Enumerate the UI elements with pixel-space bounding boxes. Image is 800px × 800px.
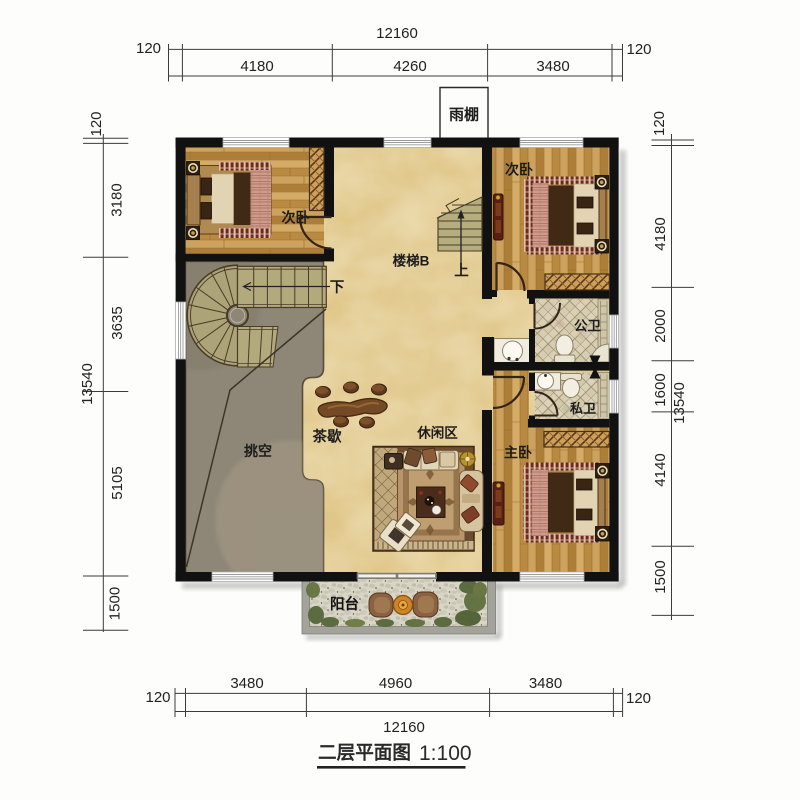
svg-text:4180: 4180 (652, 217, 669, 250)
svg-text:12160: 12160 (383, 719, 425, 736)
svg-text:4140: 4140 (652, 453, 669, 486)
svg-text:3480: 3480 (529, 675, 562, 692)
svg-text:3180: 3180 (109, 183, 126, 216)
svg-text:13540: 13540 (79, 363, 96, 405)
svg-text:楼梯B: 楼梯B (393, 253, 430, 269)
svg-text:3635: 3635 (109, 306, 126, 339)
svg-text:二层平面图: 二层平面图 (318, 742, 411, 763)
svg-text:3480: 3480 (536, 58, 569, 75)
svg-text:3480: 3480 (230, 675, 263, 692)
svg-text:120: 120 (651, 111, 668, 136)
svg-text:120: 120 (88, 111, 105, 136)
svg-text:次卧: 次卧 (505, 162, 533, 178)
svg-text:雨棚: 雨棚 (449, 106, 479, 124)
svg-text:茶歇: 茶歇 (313, 428, 342, 446)
svg-text:4260: 4260 (393, 58, 426, 75)
svg-text:120: 120 (136, 40, 161, 57)
svg-text:120: 120 (145, 689, 170, 706)
svg-text:阳台: 阳台 (330, 595, 359, 613)
svg-text:120: 120 (626, 690, 651, 707)
svg-text:公卫: 公卫 (574, 319, 602, 334)
svg-text:下: 下 (330, 279, 345, 296)
svg-text:上: 上 (454, 263, 469, 280)
svg-text:私卫: 私卫 (570, 401, 596, 416)
svg-text:1:100: 1:100 (419, 742, 472, 765)
svg-text:1500: 1500 (652, 560, 669, 593)
svg-text:2000: 2000 (652, 309, 669, 342)
svg-text:1600: 1600 (652, 373, 669, 406)
svg-text:1500: 1500 (107, 587, 124, 620)
svg-text:13540: 13540 (671, 382, 688, 424)
svg-text:主卧: 主卧 (504, 445, 532, 461)
svg-text:挑空: 挑空 (244, 443, 272, 459)
svg-text:次卧: 次卧 (282, 210, 310, 226)
svg-text:4960: 4960 (379, 675, 412, 692)
svg-text:12160: 12160 (376, 25, 418, 42)
svg-text:120: 120 (626, 41, 651, 58)
svg-text:4180: 4180 (240, 58, 273, 75)
svg-text:休闲区: 休闲区 (416, 425, 458, 441)
svg-text:5105: 5105 (109, 466, 126, 499)
